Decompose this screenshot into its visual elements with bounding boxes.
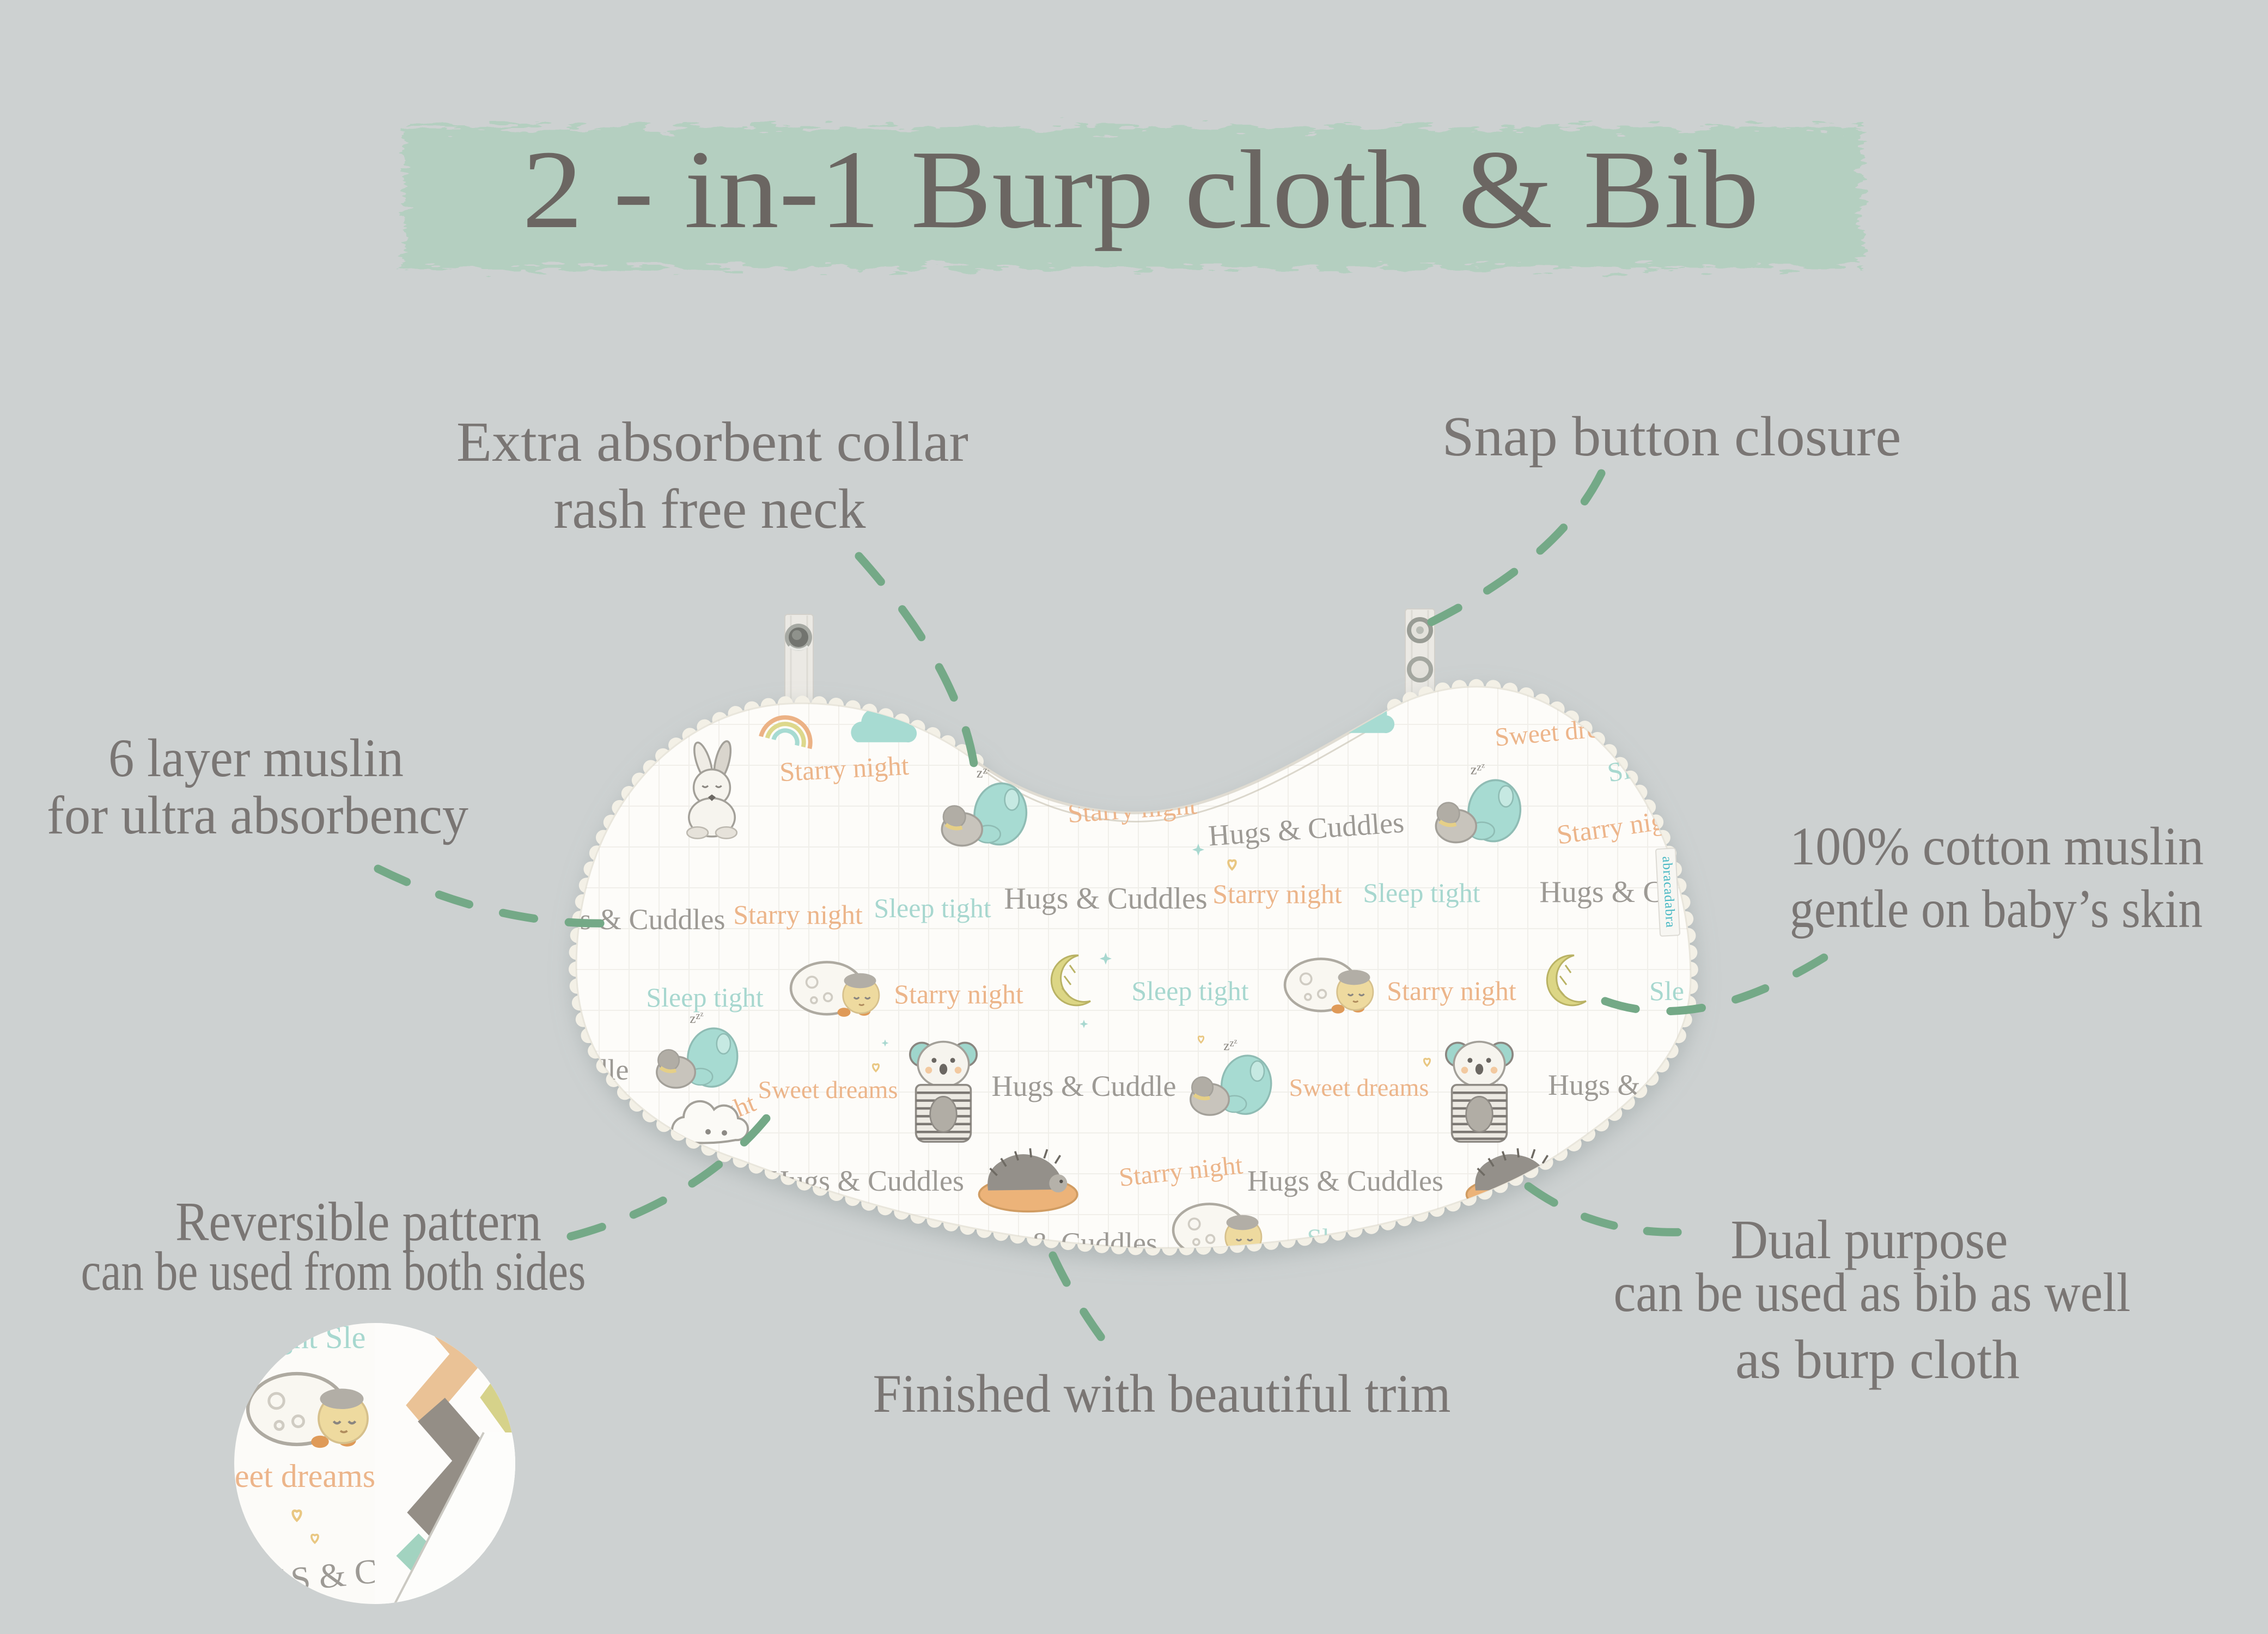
svg-text:Snap button closure: Snap button closure xyxy=(1442,405,1901,468)
svg-text:gentle on baby’s skin: gentle on baby’s skin xyxy=(1790,879,2203,939)
svg-text:as burp cloth: as burp cloth xyxy=(1735,1329,2020,1391)
svg-text:Starry night: Starry night xyxy=(733,899,863,930)
svg-text:Finished with beautiful trim: Finished with beautiful trim xyxy=(873,1363,1451,1424)
svg-text:2 - in-1 Burp cloth & Bib: 2 - in-1 Burp cloth & Bib xyxy=(522,127,1759,252)
svg-text:Sweet dreams: Sweet dreams xyxy=(758,1076,898,1103)
svg-text:Starry night: Starry night xyxy=(1212,879,1342,909)
svg-text:Hugs & Cuddle: Hugs & Cuddle xyxy=(991,1070,1176,1102)
svg-text:Hugs & Cuddles: Hugs & Cuddles xyxy=(1247,1164,1443,1197)
svg-text:Starry night: Starry night xyxy=(1387,975,1516,1006)
svg-text:eet dreams: eet dreams xyxy=(235,1458,375,1494)
svg-text:can be used from both sides: can be used from both sides xyxy=(81,1241,586,1302)
svg-text:for ultra absorbency: for ultra absorbency xyxy=(47,785,468,845)
svg-text:s & Cuddles: s & Cuddles xyxy=(580,903,725,936)
svg-text:Sleep tight: Sleep tight xyxy=(874,893,991,923)
svg-text:Hugs & Cuddles: Hugs & Cuddles xyxy=(1004,882,1207,916)
svg-text:rash free neck: rash free neck xyxy=(554,478,866,540)
svg-text:Sleep tight: Sleep tight xyxy=(1363,877,1480,908)
svg-text:Extra absorbent collar: Extra absorbent collar xyxy=(456,411,968,473)
svg-text:Sleep tight: Sleep tight xyxy=(1131,975,1248,1006)
svg-text:Hugs & C: Hugs & C xyxy=(1539,875,1663,909)
svg-text:Starry night: Starry night xyxy=(894,979,1023,1009)
svg-text:100% cotton muslin: 100% cotton muslin xyxy=(1790,816,2204,876)
svg-text:6 layer muslin: 6 layer muslin xyxy=(108,728,404,788)
svg-text:Sleep tight: Sleep tight xyxy=(646,982,763,1013)
svg-text:Sle: Sle xyxy=(1649,975,1684,1006)
svg-text:Sweet dreams: Sweet dreams xyxy=(1289,1074,1429,1101)
svg-text:can be used as bib as well: can be used as bib as well xyxy=(1614,1262,2131,1324)
